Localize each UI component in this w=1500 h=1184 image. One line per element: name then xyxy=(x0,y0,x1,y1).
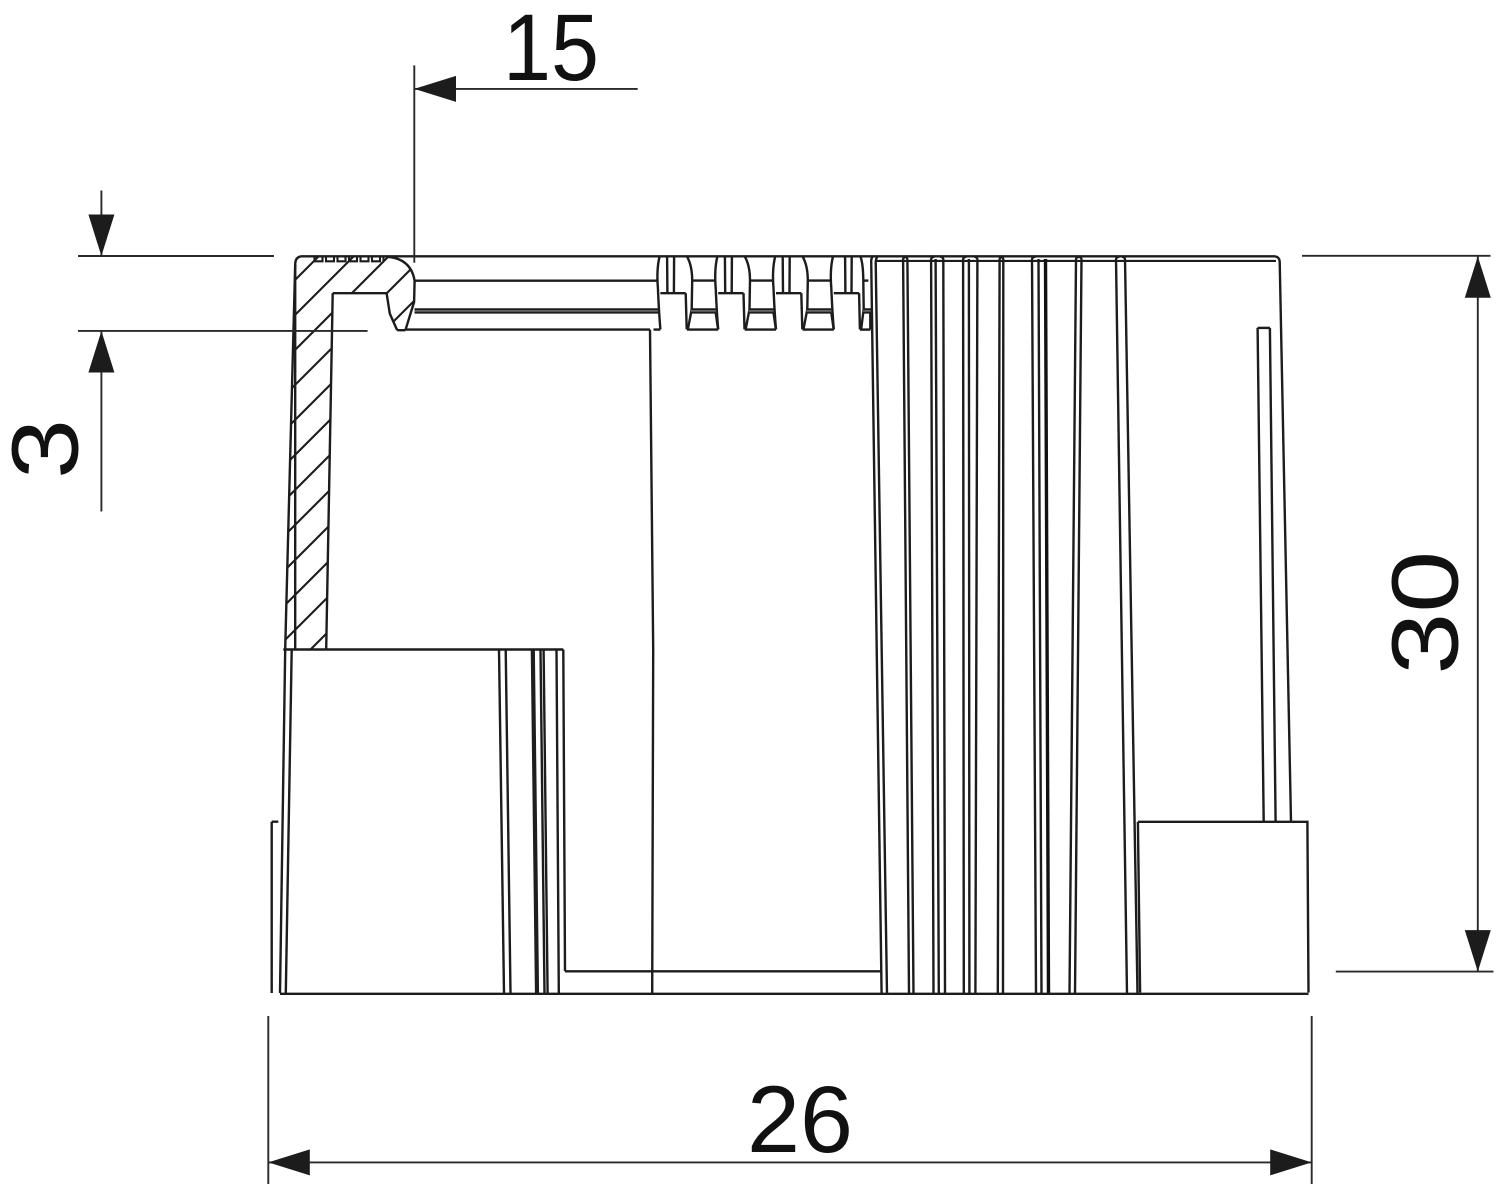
svg-text:30: 30 xyxy=(1373,551,1479,675)
svg-text:26: 26 xyxy=(747,1067,853,1173)
svg-text:3: 3 xyxy=(0,419,99,479)
svg-text:15: 15 xyxy=(503,0,599,101)
